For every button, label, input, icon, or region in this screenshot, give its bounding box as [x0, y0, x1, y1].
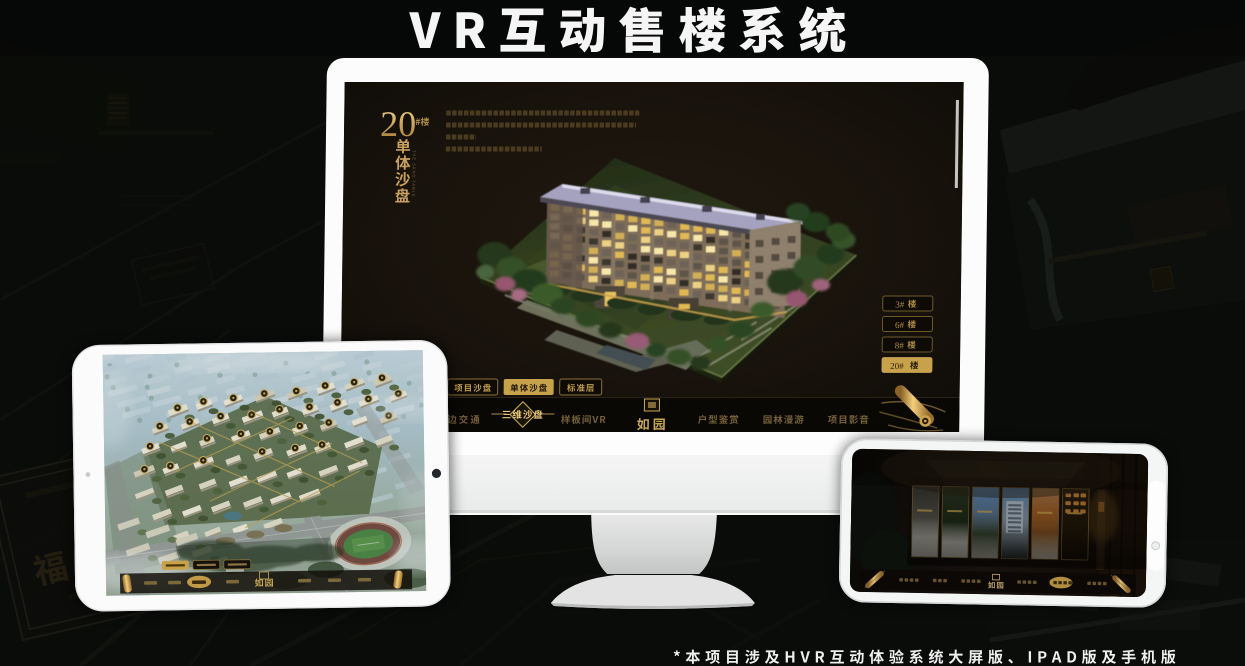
- svg-text:20#: 20#: [890, 361, 904, 371]
- svg-text:6#: 6#: [895, 320, 905, 330]
- svg-text:THE SAND TABLE: THE SAND TABLE: [411, 150, 417, 198]
- svg-text:20: 20: [380, 104, 417, 144]
- svg-text:8#: 8#: [895, 341, 905, 351]
- svg-text:3#: 3#: [895, 300, 905, 310]
